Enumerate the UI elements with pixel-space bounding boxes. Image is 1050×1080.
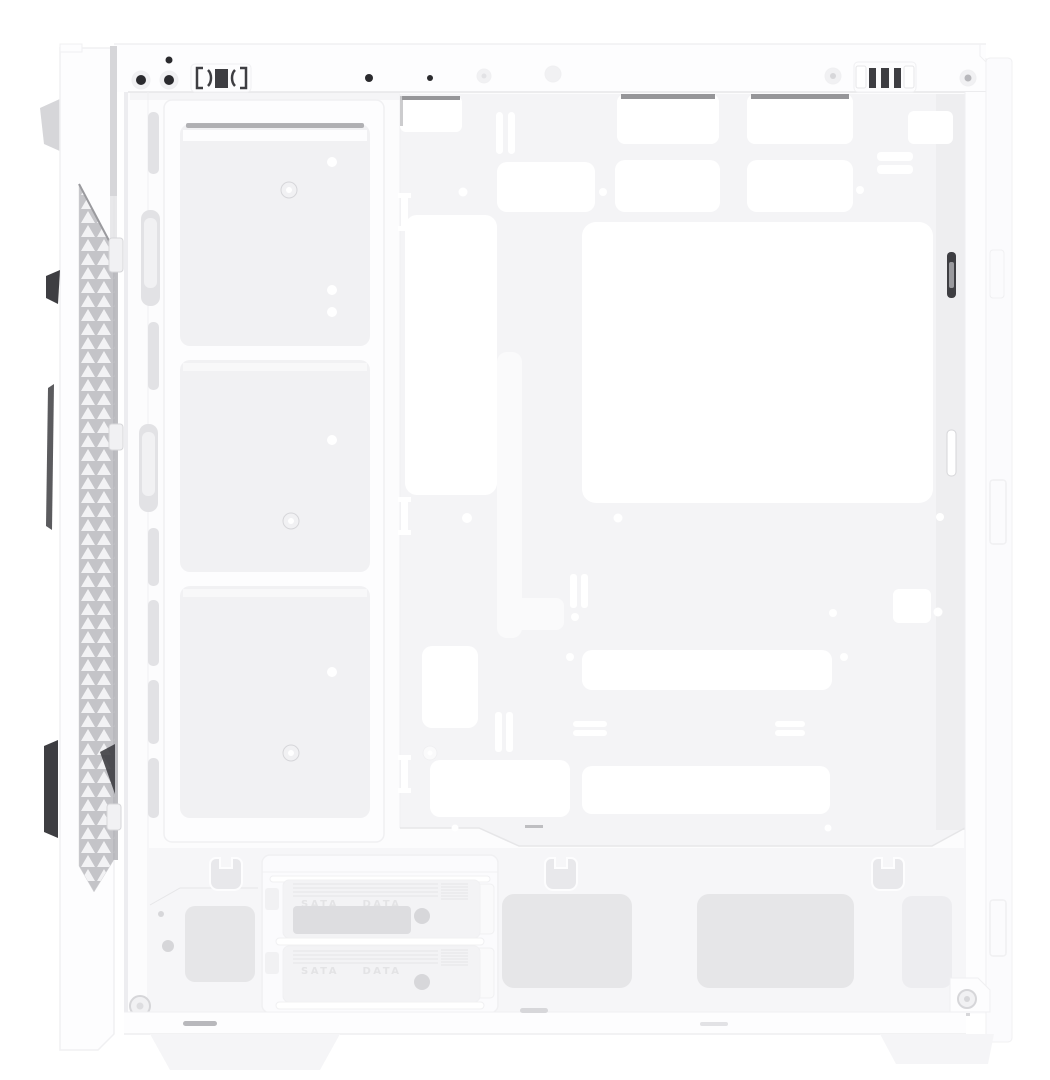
top-rail: [114, 44, 986, 92]
case-foot-shadow: [150, 1034, 340, 1070]
rivet: [428, 751, 433, 756]
top-vent-cutout: [747, 94, 853, 144]
front-mesh-vent: [79, 184, 123, 892]
panel-accent-dark: [46, 270, 60, 304]
tray-hole: [414, 974, 430, 990]
product-photo-pc-case: SATA DATA SATA DATA: [0, 0, 1050, 1080]
standoff-hole: [936, 513, 944, 521]
motherboard-tray: [398, 94, 965, 846]
bracket-opening-2: [180, 360, 370, 572]
hdd-cage: SATA DATA SATA DATA: [262, 855, 498, 1013]
standoff-hole: [825, 825, 832, 832]
side-panel-edge: [986, 58, 1012, 1042]
tray-rail: [276, 1002, 484, 1009]
panel-inner-strip: [110, 46, 117, 196]
bracket-opening-1: [180, 123, 370, 346]
cable-grommet-cutout: [497, 162, 595, 212]
screw-hole: [160, 71, 178, 89]
standoff-hole: [614, 514, 623, 523]
bottom-vent-pad: [902, 896, 952, 988]
top-vent-cutout: [400, 96, 462, 132]
cable-cutout: [422, 646, 478, 728]
cable-cutout: [430, 760, 570, 817]
edge-mark: [525, 825, 543, 828]
hdd-tray-1: SATA DATA: [270, 876, 490, 945]
frame-gap: [124, 92, 128, 1034]
pc-case-illustration: SATA DATA SATA DATA: [0, 0, 1050, 1080]
screw-hole: [132, 71, 150, 89]
cable-cutout: [582, 766, 830, 814]
tray-rail: [276, 938, 484, 945]
standoff-hole: [829, 609, 837, 617]
cage-clip: [265, 952, 279, 974]
small-cutout: [893, 589, 931, 623]
tray-hole: [414, 908, 430, 924]
cpu-cooler-cutout: [582, 222, 933, 503]
tray-recess: [498, 598, 564, 630]
rail-mark: [520, 1008, 548, 1013]
standoff-hole: [462, 513, 472, 523]
standoff-hole: [566, 653, 574, 661]
psu-area: SATA DATA SATA DATA: [130, 848, 990, 1016]
bracket-opening-3: [180, 586, 370, 818]
standoff-hole: [459, 188, 468, 197]
screw-hole: [427, 75, 433, 81]
screw-hole: [365, 74, 373, 82]
case-foot-shadow: [880, 1034, 994, 1064]
mesh-clip: [107, 804, 121, 830]
mesh-clip: [109, 238, 123, 272]
top-vent-cutout: [617, 94, 719, 144]
standoff-hole: [599, 188, 607, 196]
tray-emboss-data: DATA: [362, 966, 401, 977]
rivet: [477, 69, 491, 83]
standoff-hole: [571, 613, 579, 621]
top-vent-cutout: [908, 111, 953, 144]
cable-cutout: [582, 650, 832, 690]
bottom-vent-pad: [697, 894, 854, 988]
cable-clip-left: [191, 64, 251, 92]
cable-clip-right: [854, 62, 916, 92]
hdd-tray-2: SATA DATA: [276, 946, 484, 1009]
standoff-hole: [856, 186, 864, 194]
interior-top-shadow: [130, 92, 400, 100]
rail-mark: [700, 1022, 728, 1026]
cable-channel-cutout: [405, 215, 497, 495]
rivet: [825, 68, 841, 84]
cable-grommet-cutout: [615, 160, 720, 212]
rear-bottom-screw: [950, 978, 990, 1016]
panel-accent-dark: [44, 740, 58, 838]
rear-slot-inner: [949, 262, 954, 288]
floor-hole: [158, 911, 164, 917]
rivet: [960, 70, 976, 86]
cage-clip: [265, 888, 279, 910]
rail-mark: [183, 1021, 217, 1026]
standoff-hole: [840, 653, 848, 661]
bottom-vent-pad: [502, 894, 632, 988]
mesh-clip: [109, 424, 123, 450]
floor-hole: [162, 940, 174, 952]
tray-window: [293, 906, 411, 934]
cable-grommet-cutout: [747, 160, 853, 212]
screw-hole: [166, 57, 173, 64]
cable-channel-strip: [497, 352, 522, 638]
rivet: [545, 66, 561, 82]
standoff-hole: [452, 825, 459, 832]
rear-slot: [947, 430, 956, 476]
bottom-vent-pad: [185, 906, 255, 982]
standoff-hole: [934, 608, 943, 617]
tray-emboss-sata: SATA: [301, 966, 339, 977]
